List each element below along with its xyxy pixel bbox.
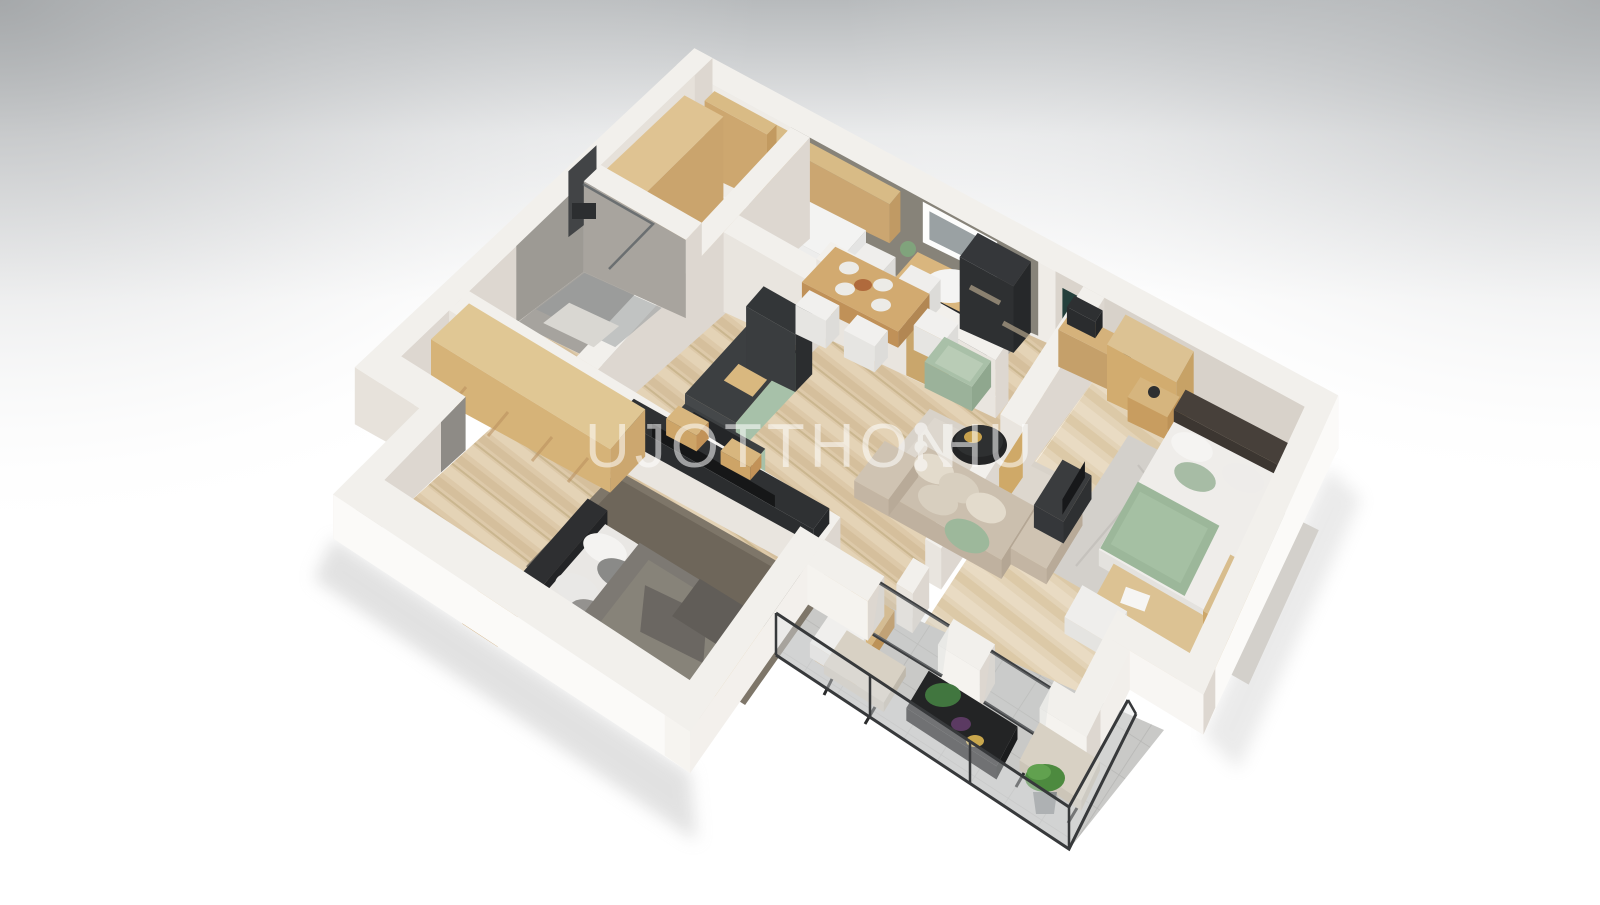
svg-text:UJOTTHON: UJOTTHON (585, 412, 963, 481)
svg-text:HU: HU (938, 412, 1038, 481)
